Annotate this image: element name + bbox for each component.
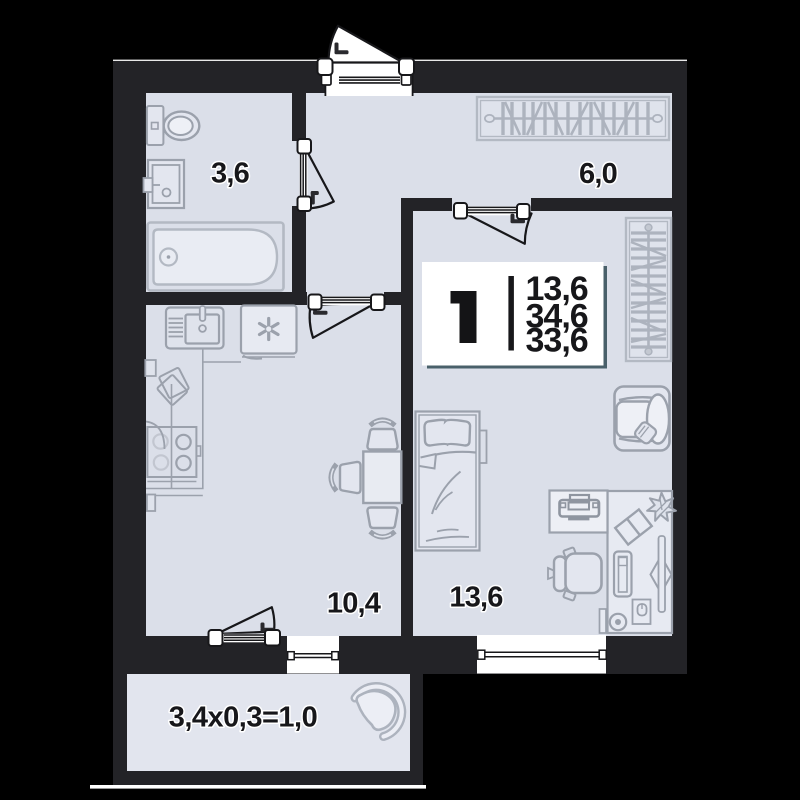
svg-text:13,6: 13,6 <box>449 582 503 614</box>
svg-text:33,6: 33,6 <box>526 322 588 360</box>
svg-text:3,6: 3,6 <box>211 158 250 190</box>
svg-text:10,4: 10,4 <box>327 588 381 620</box>
svg-text:6,0: 6,0 <box>579 158 617 190</box>
svg-text:3,4x0,3=1,0: 3,4x0,3=1,0 <box>169 702 318 734</box>
